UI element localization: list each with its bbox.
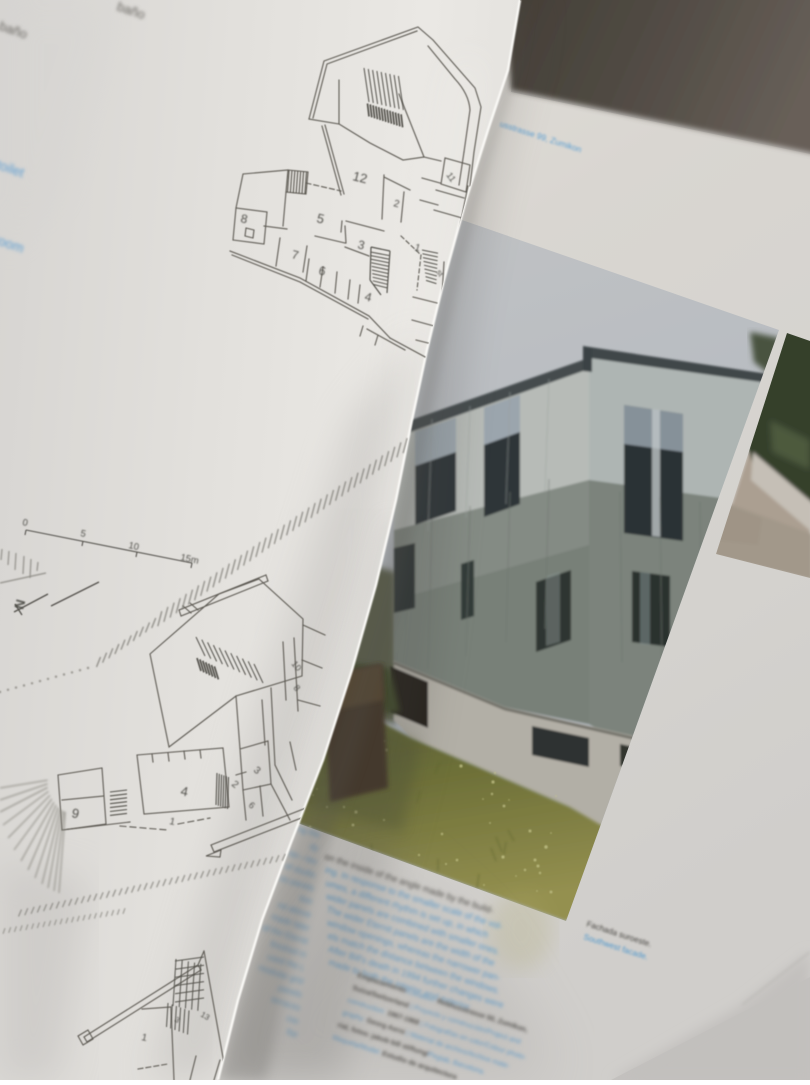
svg-text:10: 10 xyxy=(127,540,140,553)
